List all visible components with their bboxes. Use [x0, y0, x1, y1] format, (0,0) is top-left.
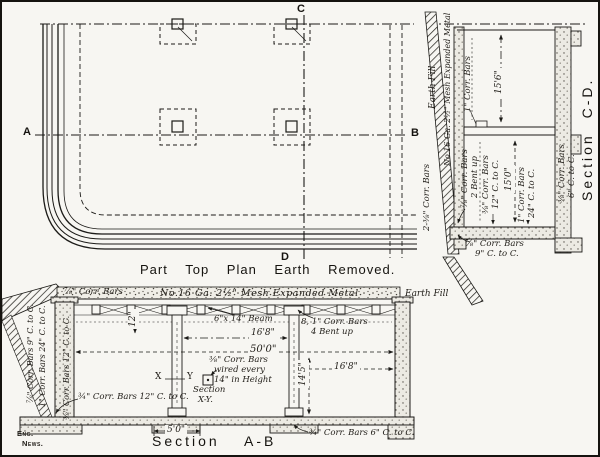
ab-xy-l2: X-Y. [198, 395, 225, 405]
ab-floor-right-label: ¾" Corr. Bars 6" C. to C. [309, 428, 414, 438]
ab-section-title-word: Section [152, 433, 220, 449]
publisher-credit: Eng. News. [17, 429, 43, 449]
ab-wired-l3: 14" in Height [214, 375, 272, 385]
ab-wall-out1-label: ⅞" Corr. Bars 9" C. to C. [26, 304, 35, 403]
section-ab-drawing [2, 257, 483, 439]
ab-xy-caption: Section X-Y. [193, 385, 225, 405]
ab-mesh-label: No.16 Ga. 2½" Mesh Expanded Metal [160, 288, 359, 299]
ab-xy-l1: Section [193, 385, 225, 395]
ab-wall-out2-label: 1" Corr. Bars 24" C. to C. [38, 305, 47, 407]
cd-slab-b-l2: 24" C. to C. [527, 167, 537, 218]
ab-bent-bars-label: 8, 1" Corr. Bars 4 Bent up [301, 317, 368, 337]
cd-wall-l1: ⅜" Corr. Bars [557, 144, 567, 203]
plan-marker-a: A [23, 126, 31, 138]
ab-earth-slope-right [443, 257, 483, 305]
cd-section-title: Section C-D. [579, 78, 595, 201]
ab-dim-168b: 16'8" [332, 362, 360, 373]
ab-earth-fill-label: Earth Fill [405, 289, 448, 300]
cd-bottom-l2: 9" C. to C. [475, 249, 524, 259]
ab-wired-bars-label: ⅜" Corr. Bars wired every 14" in Height [209, 355, 272, 385]
cd-roof-bars-label: 1" Corr. Bars [463, 56, 473, 112]
cd-slab-a-l1: ⅜" Corr. Bars [481, 155, 491, 214]
cd-outer-bars-label: 2-⅜" Corr. Bars [422, 164, 432, 231]
cd-bottom-l1: ⅞" Corr. Bars [465, 239, 524, 249]
cd-bottom-bars-label: ⅞" Corr. Bars 9" C. to C. [465, 239, 524, 259]
credit-line1: Eng. [17, 429, 43, 439]
cd-dim-lower: 15'0" [504, 165, 515, 193]
cd-wall-l2: 6" C. to C. [567, 144, 577, 198]
ab-x-marker: X [155, 372, 161, 383]
ab-bent-l1: 8, 1" Corr. Bars [301, 317, 368, 327]
ab-dim-145: 14'5" [298, 360, 309, 388]
ab-y-marker: Y [187, 372, 193, 383]
ab-floor-left-label: ¾" Corr. Bars 12" C. to C. [78, 392, 189, 402]
ab-wired-l1: ⅜" Corr. Bars [209, 355, 272, 365]
cd-middle-girder [464, 127, 555, 135]
cd-dim-upper: 15'6" [494, 68, 505, 96]
ab-bent-l2: 4 Bent up [311, 327, 368, 337]
cd-floor-slab [555, 27, 571, 253]
ab-wall-in-label: ⅜" Corr. Bars 12" C. to C. [62, 316, 71, 420]
ab-dim-168a: 16'8" [249, 328, 277, 339]
ab-wired-l2: wired every [214, 365, 272, 375]
credit-line2: News. [22, 439, 43, 449]
cd-slab-b-l1: 1" Corr. Bars [517, 167, 527, 223]
cd-slab-a-l2: 12" C. to C. [491, 155, 501, 209]
ab-section-title-letters: A-B [244, 433, 276, 449]
cd-bottom-wall [450, 227, 555, 239]
cd-wall-bars-label: ⅜" Corr. Bars 6" C. to C. [557, 144, 577, 203]
plan-column-caps [172, 19, 306, 132]
ab-right-wall [395, 302, 410, 418]
ab-roof-bars-label: ⅞" Corr. Bars [64, 287, 123, 297]
cd-slab-bars-b-label: 1" Corr. Bars 24" C. to C. [517, 167, 537, 223]
cd-bent-l1: ⅞" Corr. Bars [460, 149, 470, 208]
cd-mesh-label: No.16 Ga. 2½" Mesh Expanded Metal [443, 13, 452, 166]
ab-beam-label: 6"x 14" Beam [214, 314, 273, 324]
cd-bent-l2: 2 Bent up [470, 149, 480, 198]
cd-bent-bars-label: ⅞" Corr. Bars 2 Bent up [460, 149, 480, 208]
ab-dim-12: 12" [128, 309, 139, 329]
plan-title: Part Top Plan Earth Removed. [140, 262, 395, 277]
cd-slab-bars-a-label: ⅜" Corr. Bars 12" C. to C. [481, 155, 501, 214]
engineering-drawing-sheet: C A B D Part Top Plan Earth Removed. Ear… [0, 0, 600, 457]
ab-floor-slab [20, 417, 414, 425]
plan-wall-lines [43, 24, 417, 249]
cd-earth-fill-label: Earth Fill [428, 66, 439, 109]
plan-marker-c: C [297, 3, 305, 15]
plan-drawing [35, 15, 587, 259]
plan-marker-b: B [411, 127, 419, 139]
